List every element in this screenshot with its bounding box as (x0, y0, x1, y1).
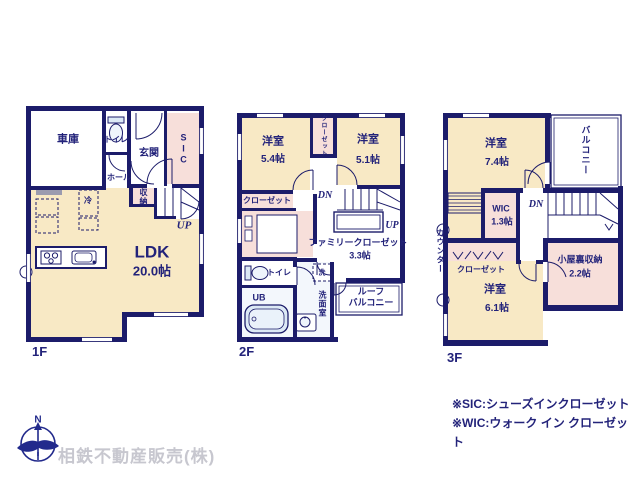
room-label-closet-top: クローゼット (320, 115, 326, 157)
floor-label-3f: 3F (447, 350, 462, 365)
compass-icon: N (14, 412, 62, 468)
room-label-closet-3f: クローゼット (457, 266, 505, 274)
room-label-storage: 収納 (139, 188, 147, 206)
room-label-roof-balcony-2: バルコニー (349, 299, 394, 308)
room-label-attic: 小屋裏収納 (557, 256, 602, 265)
counter-hatch (448, 193, 483, 213)
room-label-toilet-1f: トイレ (104, 136, 128, 144)
room-label-hall: ホール (107, 174, 131, 182)
stairwell-void (334, 212, 383, 232)
label-stairs-dn-3f: DN (529, 200, 543, 210)
room-size-3f-room2: 6.1帖 (485, 304, 509, 314)
bathtub-icon (245, 305, 288, 333)
room-label-family-closet: ファミリークローゼット (308, 239, 407, 248)
room-label-closet-left: クローゼット (243, 197, 291, 205)
legend-wic-note: ※WIC:ウォーク イン クローゼット (452, 414, 640, 452)
room-size-family-closet: 3.3帖 (349, 252, 371, 261)
room-size-wic: 1.3帖 (491, 218, 513, 227)
family-closet-inner (257, 215, 297, 253)
legend-sic-note: ※SIC:シューズインクローゼット (452, 395, 640, 414)
room-size-ldk: 20.0帖 (133, 265, 171, 278)
toilet-icon-2f (245, 266, 268, 280)
floor-3f-architecture (439, 104, 635, 350)
legend-notes: ※SIC:シューズインクローゼット ※WIC:ウォーク イン クローゼット (452, 395, 640, 452)
room-label-3f-room1: 洋室 (485, 139, 507, 150)
lavatory-sink-icon (296, 314, 316, 331)
room-label-garage: 車庫 (57, 135, 79, 146)
label-stairs-dn-2f: DN (318, 191, 332, 201)
label-stairs-up-1f: UP (177, 221, 192, 232)
kitchen-sink-icon (72, 251, 96, 264)
floor-1f-plan: 車庫 トイレ 玄関 SIC ホール 冷 収納 UP LDK 20.0帖 1F (24, 104, 216, 366)
room-label-ub: UB (253, 294, 266, 303)
floor-2f-plan: 洋室 5.4帖 クローゼット 洋室 5.1帖 クローゼット DN UP ファミリ… (233, 104, 413, 366)
label-stairs-up-2f: UP (385, 221, 398, 231)
room-size-attic: 2.2帖 (569, 270, 591, 279)
room-label-roof-balcony-1: ルーフ (358, 288, 384, 297)
floor-3f-plan: 洋室 7.4帖 バルコニー WIC 1.3帖 DN カウンター クローゼット 小… (439, 104, 635, 370)
room-label-wic: WIC (492, 205, 510, 214)
kitchen-counter (36, 247, 106, 268)
label-washer: 洗 (319, 270, 326, 277)
room-label-balcony-3f: バルコニー (581, 125, 590, 175)
stove-icon (41, 251, 61, 264)
floor-label-2f: 2F (239, 344, 254, 359)
room-label-washroom: 洗面室 (318, 291, 326, 318)
room-label-2f-room2: 洋室 (357, 135, 379, 146)
room-label-sic: SIC (179, 133, 188, 166)
room-label-2f-room1: 洋室 (262, 137, 284, 148)
label-fridge: 冷 (84, 197, 92, 205)
room-label-ldk: LDK (135, 244, 170, 261)
floorplan-page: 車庫 トイレ 玄関 SIC ホール 冷 収納 UP LDK 20.0帖 1F (0, 0, 640, 480)
room-label-toilet-2f: トイレ (267, 269, 291, 277)
room-size-2f-room1: 5.4帖 (261, 155, 285, 165)
room-label-3f-room2: 洋室 (484, 285, 506, 296)
compass-north-label: N (34, 415, 41, 426)
label-counter: カウンター (436, 229, 444, 274)
floor-label-1f: 1F (32, 344, 47, 359)
room-label-entrance: 玄関 (139, 149, 159, 159)
room-size-3f-room1: 7.4帖 (485, 158, 509, 168)
room-size-2f-room2: 5.1帖 (356, 156, 380, 166)
company-name: 相鉄不動産販売(株) (58, 442, 215, 467)
